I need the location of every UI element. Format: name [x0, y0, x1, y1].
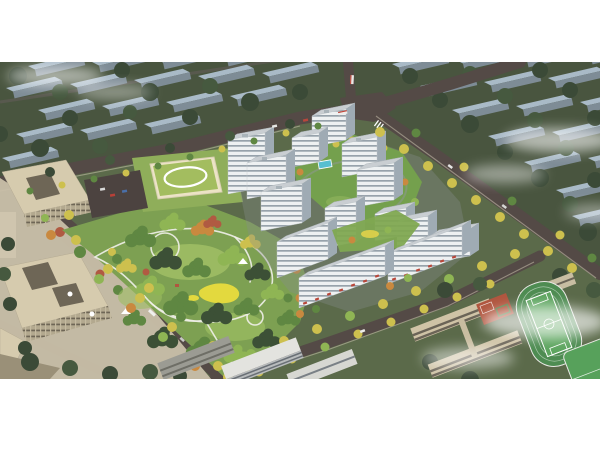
aerial-rendering: [0, 62, 600, 379]
playground-small: [187, 295, 199, 301]
office-sliver: [0, 212, 16, 258]
pavilion: [175, 284, 179, 287]
page: [0, 0, 600, 450]
cloud-top-left: [7, 66, 103, 86]
